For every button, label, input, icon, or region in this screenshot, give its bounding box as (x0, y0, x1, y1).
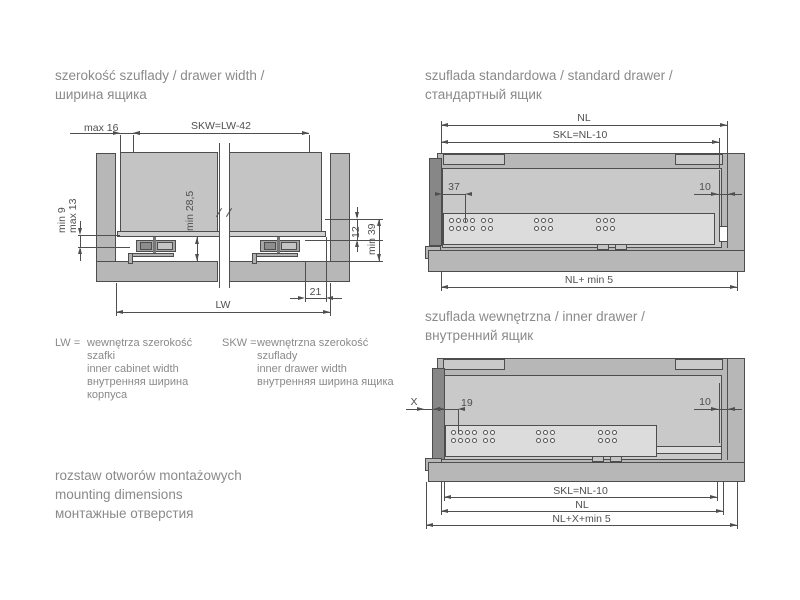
std-back-line (719, 170, 720, 232)
dim-label-nl-min5: NL+ min 5 (441, 275, 737, 286)
runner-detail (140, 242, 152, 250)
runner-arm (252, 253, 298, 257)
ext-line (737, 272, 738, 291)
catalog-page: szerokość szuflady / drawer width / шири… (0, 0, 800, 600)
legend-lw-term: LW = (55, 337, 80, 350)
dim-tail (357, 242, 358, 252)
legend-line: внутренняя ширина ящика (257, 376, 394, 389)
title-line: стандартный ящик (425, 85, 673, 104)
std-rail (443, 213, 715, 245)
std-front-bracket (429, 158, 442, 246)
inner-mounting-holes (451, 430, 617, 446)
dim-min39 (379, 219, 380, 261)
runner-left (130, 237, 192, 265)
section-title-inner-drawer: szuflada wewnętrzna / inner drawer / вну… (425, 307, 645, 345)
dim-label-12: 12 (351, 226, 362, 238)
runner-hook (252, 253, 257, 264)
legend-skw-term: SKW = (222, 337, 257, 350)
dim-label-min39: min 39 (367, 223, 378, 255)
inner-rail (445, 425, 657, 457)
dim-nl (441, 125, 727, 126)
dim-x (424, 409, 433, 410)
dim-label-max13: max 13 (68, 199, 79, 233)
ext-line (350, 261, 383, 262)
std-top-notch-front (443, 154, 505, 165)
title-line: szuflada standardowa / standard drawer / (425, 66, 673, 85)
dim-max16 (120, 133, 133, 134)
ext-line (309, 135, 310, 152)
std-back-edge (727, 153, 728, 248)
legend-line: корпуса (87, 389, 192, 402)
dim-label-min285: min 28,5 (185, 191, 196, 231)
ext-line (719, 138, 720, 168)
drawer-panel-right (229, 152, 322, 237)
dim-label-nl-x-min5: NL+X+min 5 (426, 514, 737, 525)
runner-pin (277, 237, 280, 253)
dim-10 (718, 409, 728, 410)
dim-label-skl: SKL=NL-10 (444, 486, 717, 497)
dim-label-nl: NL (441, 113, 727, 124)
inner-back-line (719, 383, 720, 443)
inner-bottom-profile (428, 462, 745, 482)
dim-label-19: 19 (461, 398, 473, 409)
title-line: szerokość szuflady / drawer width / (55, 66, 264, 85)
legend-line: inner drawer width (257, 363, 394, 376)
ext-line (737, 482, 738, 529)
legend-line: szuflady (257, 350, 394, 363)
dim-21 (305, 298, 326, 299)
dim-tail (80, 221, 81, 229)
ext-line (717, 482, 718, 501)
ext-line (78, 247, 130, 248)
runner-detail (264, 242, 276, 250)
dim-label-skl: SKL=NL-10 (441, 130, 719, 141)
mounting-line: монтажные отверстия (55, 504, 242, 523)
title-line: ширина ящика (55, 85, 264, 104)
runner-arm (128, 253, 174, 257)
inner-top-notch-back (675, 359, 723, 370)
ext-line (325, 219, 383, 220)
title-line: внутренний ящик (425, 326, 645, 345)
break-line (229, 143, 230, 288)
dim-lw (116, 312, 330, 313)
dim-skl (441, 142, 719, 143)
dim-tail (290, 298, 299, 299)
legend-line: szafki (87, 350, 192, 363)
dim-label-skw: SKW=LW-42 (133, 121, 309, 132)
ext-line (120, 135, 121, 152)
title-line: szuflada wewnętrzna / inner drawer / (425, 307, 645, 326)
legend-line: wewnętrzna szerokość (257, 337, 394, 350)
dim-label-37: 37 (443, 182, 465, 193)
runner-detail (157, 242, 173, 250)
legend-lw-lines: wewnętrza szerokość szafki inner cabinet… (87, 337, 192, 402)
dim-skl (444, 497, 717, 498)
ext-line (330, 283, 331, 316)
ext-line (78, 235, 120, 236)
dim-nl (441, 511, 723, 512)
dim-min285 (197, 237, 198, 261)
runner-pin (153, 237, 156, 253)
ext-line (723, 482, 724, 515)
ext-line (727, 121, 728, 153)
dim-min9-max13 (80, 235, 81, 247)
legend-line: внутренняя ширина (87, 376, 192, 389)
ext-line (133, 135, 134, 152)
mounting-text: rozstaw otworów montażowych mounting dim… (55, 466, 242, 523)
dim-skw (133, 133, 309, 134)
inner-rail-extension (656, 446, 722, 454)
break-line (219, 143, 220, 288)
dim-label-21: 21 (303, 287, 328, 298)
inner-top-notch-front (443, 359, 505, 370)
dim-37 (442, 194, 465, 195)
section-title-standard-drawer: szuflada standardowa / standard drawer /… (425, 66, 673, 104)
mounting-line: rozstaw otworów montażowych (55, 466, 242, 485)
legend-line: wewnętrza szerokość (87, 337, 192, 350)
dim-drop-line (465, 194, 466, 222)
dim-tail (357, 207, 358, 217)
dim-nl-min5 (441, 287, 737, 288)
dim-nl-x-min5 (426, 525, 737, 526)
dim-label-lw: LW (116, 300, 330, 311)
dim-tail (728, 194, 742, 195)
dim-tail (80, 249, 81, 261)
std-mounting-holes (449, 218, 615, 234)
section-title-drawer-width: szerokość szuflady / drawer width / шири… (55, 66, 264, 104)
dim-10 (718, 194, 728, 195)
dim-19 (445, 409, 458, 410)
legend-line: inner cabinet width (87, 363, 192, 376)
legend-skw-lines: wewnętrzna szerokość szuflady inner draw… (257, 337, 394, 389)
runner-detail (281, 242, 297, 250)
drawer-panel-left (120, 152, 218, 237)
inner-front-bracket (432, 368, 445, 460)
std-top-notch-back (675, 154, 723, 165)
dim-tail (333, 298, 342, 299)
mounting-line: mounting dimensions (55, 485, 242, 504)
dim-drop-line (458, 409, 459, 434)
dim-label-nl: NL (441, 500, 723, 511)
runner-hook (128, 253, 133, 264)
dim-tail (728, 409, 742, 410)
runner-right (254, 237, 316, 265)
std-bottom-profile (428, 250, 745, 272)
